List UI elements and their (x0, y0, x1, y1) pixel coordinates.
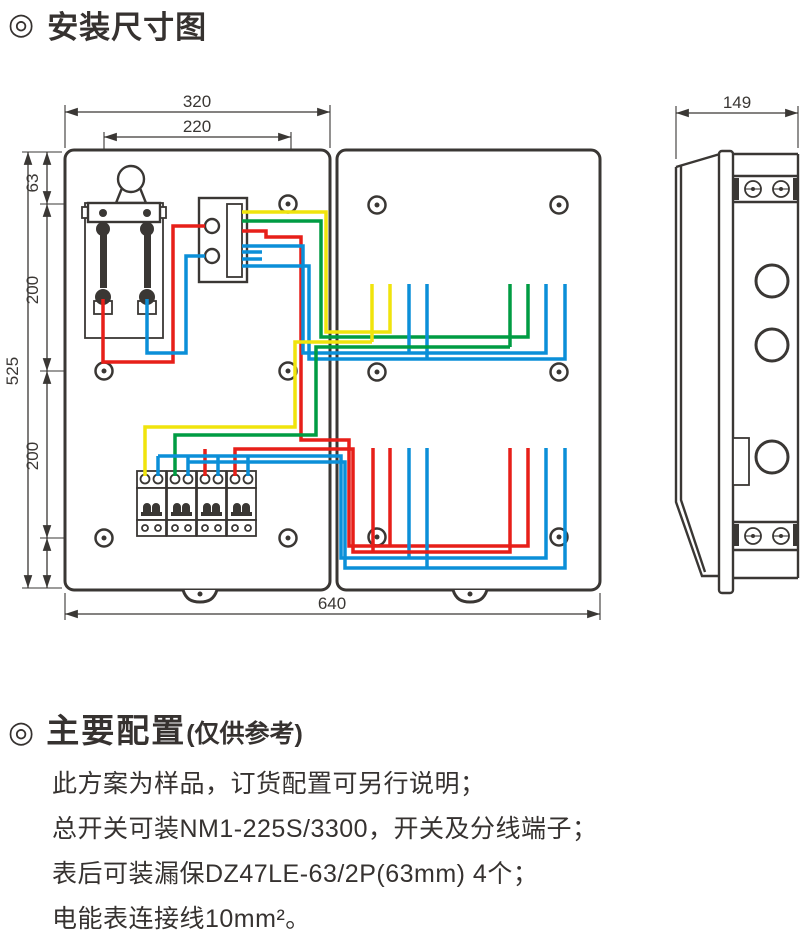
mounting-hole (369, 529, 386, 546)
config-line: 此方案为样品，订货配置可另行说明； (52, 762, 598, 807)
breaker-group (137, 471, 256, 536)
mounting-hole (551, 364, 568, 381)
side-back-panel (676, 167, 720, 576)
config-text: 此方案为样品，订货配置可另行说明； 总开关可装NM1-225S/3300，开关及… (52, 762, 598, 935)
config-line: 总开关可装NM1-225S/3300，开关及分线端子； (52, 807, 598, 852)
breaker (137, 471, 166, 536)
side-view (676, 151, 798, 593)
mounting-hole (96, 363, 113, 380)
installation-diagram: 320 220 640 149 63 200 200 525 (0, 85, 800, 650)
switch-handle-ball (118, 166, 144, 192)
dim-upper-pitch-label: 200 (23, 276, 42, 304)
lid-screw-hole (198, 592, 203, 597)
knockout-hole (756, 441, 788, 473)
breaker (167, 471, 196, 536)
dim-lower-pitch-label: 200 (23, 442, 42, 470)
breaker (227, 471, 256, 536)
side-bottom-bracket (733, 522, 798, 550)
mounting-hole (551, 197, 568, 214)
mounting-hole (369, 197, 386, 214)
lid-screw-hole (468, 592, 473, 597)
mounting-hole (369, 364, 386, 381)
dim-overall-width-label: 640 (318, 594, 346, 613)
terminal-inlet (205, 219, 219, 233)
page-title-text: 安装尺寸图 (47, 2, 207, 47)
knockout-hole (756, 329, 788, 361)
config-title-note: (仅供参考) (186, 714, 303, 750)
page-title: ◎ 安装尺寸图 (8, 2, 207, 47)
mounting-hole (280, 196, 297, 213)
terminal-strip (227, 204, 242, 277)
side-hinge-block (733, 438, 749, 485)
side-top-bracket (733, 176, 798, 202)
dim-depth-label: 149 (723, 93, 751, 112)
knockout-hole (756, 265, 788, 297)
dim-front-width-label: 320 (183, 92, 211, 111)
config-line: 表后可装漏保DZ47LE-63/2P(63mm) 4个； (52, 852, 598, 897)
mounting-hole (280, 530, 297, 547)
section-bullet-icon: ◎ (8, 715, 34, 750)
section-bullet-icon: ◎ (8, 7, 35, 42)
dim-hole-span-label: 220 (183, 117, 211, 136)
breaker (197, 471, 226, 536)
terminal-block (199, 198, 247, 282)
dim-top-offset-label: 63 (23, 174, 42, 193)
config-section-title: ◎ 主要配置 (仅供参考) (8, 704, 303, 752)
dim-overall-height-label: 525 (3, 357, 22, 385)
config-line: 电能表连接线10mm²。 (52, 897, 598, 935)
manual-page: ◎ 安装尺寸图 (0, 0, 800, 935)
terminal-inlet (205, 249, 219, 263)
mounting-hole (96, 530, 113, 547)
config-title-text: 主要配置 (46, 704, 186, 752)
side-door-edge (719, 151, 733, 593)
